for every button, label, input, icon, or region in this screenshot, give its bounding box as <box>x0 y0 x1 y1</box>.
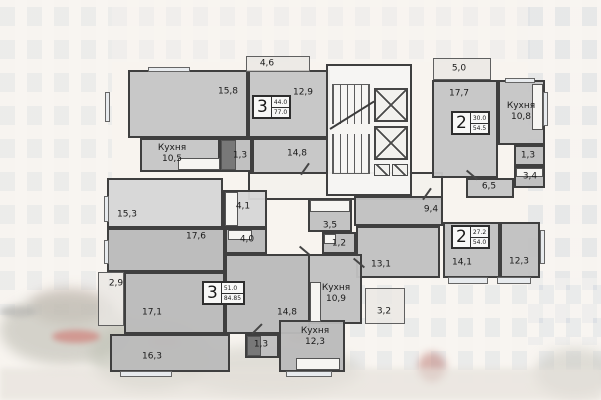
room-12-3-label: 12,3 <box>509 257 529 268</box>
badge-rooms-count: 2 <box>453 227 470 247</box>
badge-rooms-count: 2 <box>453 113 470 133</box>
elevator-shaft-icon <box>374 126 408 160</box>
kitchen-counter <box>296 358 340 370</box>
window-mark <box>104 240 109 264</box>
window-mark <box>104 196 109 222</box>
wc-1-2-label: 1,2 <box>332 239 346 250</box>
apt-2room-30-badge: 230.054.5 <box>451 111 490 135</box>
elevator-shaft-icon <box>374 88 408 122</box>
badge-living-area: 51.0 <box>222 284 243 294</box>
badge-areas: 30.054.5 <box>470 113 488 133</box>
balcony-3-2-label: 3,2 <box>377 307 391 318</box>
room-15-3-label: 15,3 <box>117 210 137 221</box>
window-mark <box>543 92 548 126</box>
room-13-1-label: 13,1 <box>371 260 391 271</box>
service-shaft-icon <box>392 164 408 176</box>
room-15-3 <box>107 178 223 228</box>
hall-9-4-label: 9,4 <box>424 205 438 216</box>
badge-areas: 51.084.85 <box>221 283 243 303</box>
badge-living-area: 30.0 <box>471 114 488 124</box>
window-mark <box>540 230 545 264</box>
badge-rooms-count: 3 <box>254 97 271 117</box>
room-17-7-label: 17,7 <box>449 89 469 100</box>
badge-living-area: 44.0 <box>272 98 289 108</box>
badge-areas: 27.254.0 <box>470 227 488 247</box>
room-17-1-label: 17,1 <box>142 308 162 319</box>
apt-2room-27-badge: 227.254.0 <box>451 225 490 249</box>
kitchen-10-9-label: Кухня10,9 <box>322 283 350 305</box>
room-16-3-label: 16,3 <box>142 352 162 363</box>
room-15-8 <box>128 70 248 138</box>
badge-rooms-count: 3 <box>204 283 221 303</box>
hall-6-5-label: 6,5 <box>482 182 496 193</box>
window-mark <box>105 92 110 122</box>
wc-1-3-a-label: 1,3 <box>233 151 247 162</box>
badge-total-area: 54.0 <box>471 238 488 247</box>
badge-living-area: 27.2 <box>471 228 488 238</box>
kitchen-10-5-label: Кухня10,5 <box>158 143 186 165</box>
room-17-6-label: 17,6 <box>186 232 206 243</box>
stair-landing <box>332 124 370 134</box>
balcony-4-6-label: 4,6 <box>260 59 274 70</box>
room-16-3 <box>110 334 230 372</box>
wc-1-3-c-label: 1,3 <box>254 340 268 351</box>
window-mark <box>148 67 190 72</box>
window-mark <box>505 78 535 83</box>
service-shaft-icon <box>374 164 390 176</box>
room-13-1 <box>356 226 440 278</box>
room-12-9-label: 12,9 <box>293 88 313 99</box>
wc-1-3-b-label: 1,3 <box>521 151 535 162</box>
hall-14-8-b-label: 14,8 <box>277 308 297 319</box>
kitchen-counter <box>310 282 321 322</box>
badge-areas: 44.077.0 <box>271 97 289 117</box>
window-mark <box>286 371 332 377</box>
balcony-2-9-label: 2,9 <box>109 279 123 290</box>
bath-3-5-label: 3,5 <box>323 221 337 232</box>
apt-3room-51-badge: 351.084.85 <box>202 281 245 305</box>
balcony-4-6 <box>246 56 310 72</box>
balcony-5-0-label: 5,0 <box>452 64 466 75</box>
kitchen-12-3-label: Кухня12,3 <box>301 326 329 348</box>
window-mark <box>497 277 531 284</box>
room-14-1-label: 14,1 <box>452 258 472 269</box>
room-12-3 <box>500 222 540 278</box>
window-mark <box>448 277 488 284</box>
bath-4-1-label: 4,1 <box>236 202 250 213</box>
room-15-8-label: 15,8 <box>218 87 238 98</box>
badge-total-area: 77.0 <box>272 108 289 117</box>
bathtub <box>310 200 350 212</box>
room-17-6 <box>107 228 225 272</box>
bath-3-4-label: 3,4 <box>523 172 537 183</box>
floor-plan: 15,812,94,6Кухня10,51,314,815,34,15,017,… <box>0 0 601 400</box>
hall-14-8-a-label: 14,8 <box>287 149 307 160</box>
bath-4-0-label: 4,0 <box>240 235 254 246</box>
apt-3room-44-badge: 344.077.0 <box>252 95 291 119</box>
badge-total-area: 54.5 <box>471 124 488 133</box>
window-mark <box>120 371 172 377</box>
badge-total-area: 84.85 <box>222 294 243 303</box>
kitchen-10-8-label: Кухня10,8 <box>507 101 535 123</box>
